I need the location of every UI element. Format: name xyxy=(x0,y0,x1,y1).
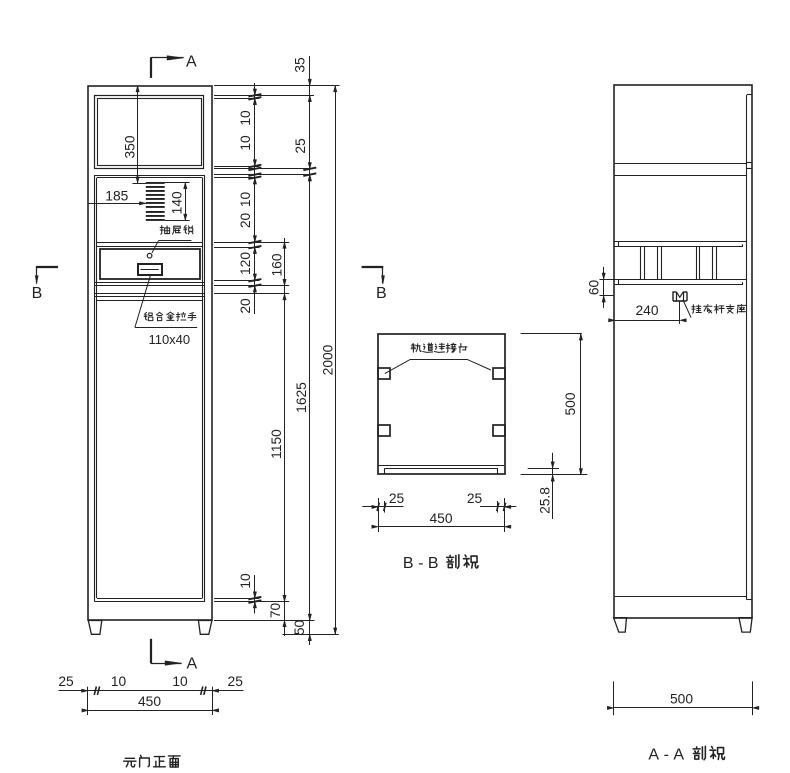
svg-text:10: 10 xyxy=(238,135,253,151)
svg-text:B-B: B-B xyxy=(403,555,443,572)
svg-text:35: 35 xyxy=(293,57,308,73)
svg-text:20: 20 xyxy=(238,213,253,229)
svg-text:25: 25 xyxy=(228,674,244,689)
svg-text:20: 20 xyxy=(238,298,253,314)
svg-text:185: 185 xyxy=(105,189,128,204)
svg-text:25: 25 xyxy=(293,138,308,154)
svg-text:10: 10 xyxy=(238,110,253,126)
svg-text:1150: 1150 xyxy=(269,429,284,459)
svg-text:B: B xyxy=(32,285,43,302)
svg-text:450: 450 xyxy=(138,694,161,709)
svg-text:500: 500 xyxy=(563,392,578,415)
svg-text:25.8: 25.8 xyxy=(537,487,552,514)
svg-text:25: 25 xyxy=(58,674,74,689)
svg-text:2000: 2000 xyxy=(320,344,335,375)
svg-text:A: A xyxy=(186,54,197,71)
svg-text:240: 240 xyxy=(635,303,658,318)
svg-text:A: A xyxy=(186,655,197,672)
svg-text:500: 500 xyxy=(670,691,693,706)
svg-text:A-A: A-A xyxy=(648,746,688,763)
svg-text:110x40: 110x40 xyxy=(148,332,190,347)
svg-text:350: 350 xyxy=(122,135,137,158)
svg-text:10: 10 xyxy=(238,573,253,589)
svg-text:10: 10 xyxy=(238,192,253,208)
svg-text:70: 70 xyxy=(268,603,283,619)
svg-text:50: 50 xyxy=(292,620,307,636)
svg-text:450: 450 xyxy=(429,511,452,526)
svg-text:10: 10 xyxy=(111,674,127,689)
svg-text:25: 25 xyxy=(389,491,405,506)
svg-text:140: 140 xyxy=(169,191,184,214)
svg-text:B: B xyxy=(376,285,387,302)
svg-text:1625: 1625 xyxy=(294,382,309,413)
svg-text:120: 120 xyxy=(238,252,253,275)
svg-text:25: 25 xyxy=(467,491,483,506)
svg-text:10: 10 xyxy=(172,674,188,689)
svg-text:160: 160 xyxy=(269,253,284,276)
svg-text:60: 60 xyxy=(586,280,601,296)
